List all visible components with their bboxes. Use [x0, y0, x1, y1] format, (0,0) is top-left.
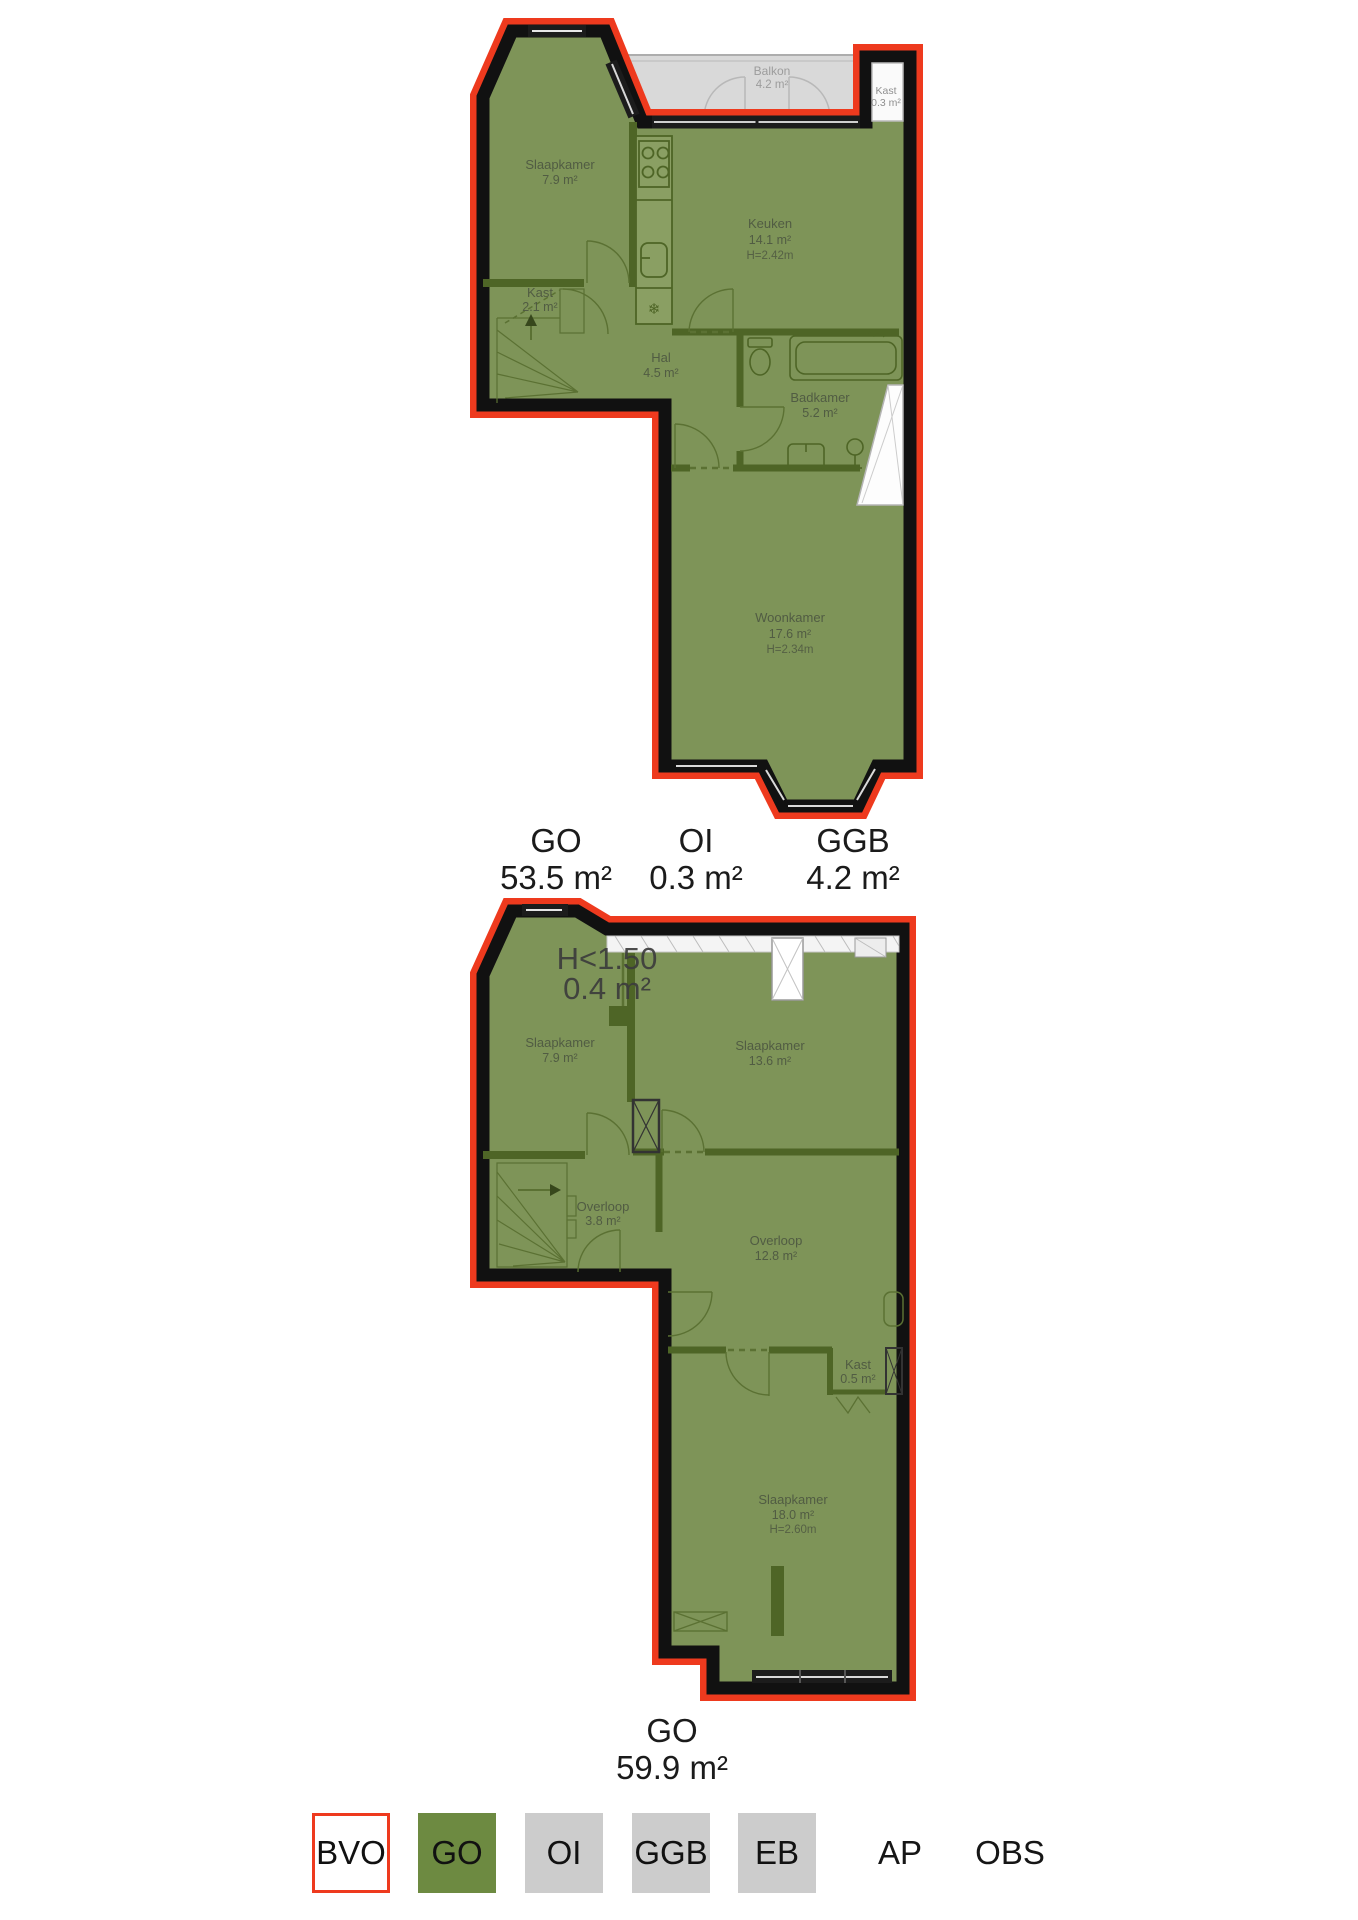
- floor1-total-go: GO 53.5 m²: [500, 822, 612, 896]
- legend-item-oi: OI: [525, 1813, 603, 1893]
- low-height-annotation: H<1.50 0.4 m²: [557, 944, 658, 1004]
- room-label-kast-oi: Kast: [875, 85, 896, 97]
- room-label-overloop-groot: Overloop: [750, 1233, 803, 1248]
- room-label-badkamer: Badkamer: [790, 390, 850, 405]
- svg-text:13.6 m²: 13.6 m²: [749, 1054, 791, 1068]
- floor-plan-2: Slaapkamer 7.9 m² Slaapkamer 13.6 m² Ove…: [483, 904, 903, 1688]
- room-label-hal: Hal: [651, 350, 671, 365]
- floor1-total-ggb: GGB 4.2 m²: [806, 822, 900, 896]
- room-label-slaapkamer-3: Slaapkamer: [758, 1492, 828, 1507]
- room-label-slaapkamer-2: Slaapkamer: [735, 1038, 805, 1053]
- room-label-balkon: Balkon: [754, 64, 791, 78]
- room-label-kast-2: Kast: [845, 1357, 871, 1372]
- wall-stub: [771, 1566, 784, 1636]
- svg-text:H=2.42m: H=2.42m: [747, 250, 794, 262]
- legend-item-obs: OBS: [975, 1813, 1045, 1893]
- room-label-slaapkamer: Slaapkamer: [525, 157, 595, 172]
- svg-text:0.5 m²: 0.5 m²: [840, 1372, 875, 1386]
- room-label-overloop-klein: Overloop: [577, 1199, 630, 1214]
- floor1-walls: [483, 31, 910, 806]
- floor2-total-go: GO 59.9 m²: [616, 1712, 728, 1786]
- kitchen-counter: [636, 136, 672, 324]
- svg-text:0.3 m²: 0.3 m²: [871, 97, 901, 109]
- legend-item-go: GO: [418, 1813, 496, 1893]
- svg-text:H=2.34m: H=2.34m: [767, 644, 814, 656]
- svg-text:4.2 m²: 4.2 m²: [756, 79, 789, 91]
- legend-item-eb: EB: [738, 1813, 816, 1893]
- svg-text:7.9 m²: 7.9 m²: [542, 1051, 577, 1065]
- svg-text:18.0 m²: 18.0 m²: [772, 1508, 814, 1522]
- room-label-slaapkamer-1: Slaapkamer: [525, 1035, 595, 1050]
- floor-plan-1: ❄ Slaapkamer 7.9 m²: [483, 25, 910, 806]
- svg-text:7.9 m²: 7.9 m²: [542, 173, 577, 187]
- legend-item-bvo: BVO: [312, 1813, 390, 1893]
- svg-text:H=2.60m: H=2.60m: [770, 1524, 817, 1536]
- legend-item-ap: AP: [878, 1813, 922, 1893]
- svg-text:17.6 m²: 17.6 m²: [769, 627, 811, 641]
- room-label-woonkamer: Woonkamer: [755, 610, 826, 625]
- freezer-icon: ❄: [648, 301, 661, 318]
- room-label-kast: Kast: [527, 285, 553, 300]
- svg-text:2.1 m²: 2.1 m²: [522, 300, 557, 314]
- legend-item-ggb: GGB: [632, 1813, 710, 1893]
- svg-text:5.2 m²: 5.2 m²: [802, 406, 837, 420]
- floor2-walls: [483, 911, 903, 1688]
- svg-text:14.1 m²: 14.1 m²: [749, 233, 791, 247]
- svg-text:4.5 m²: 4.5 m²: [643, 366, 678, 380]
- floor1-total-oi: OI 0.3 m²: [649, 822, 743, 896]
- room-label-keuken: Keuken: [748, 216, 792, 231]
- svg-text:12.8 m²: 12.8 m²: [755, 1249, 797, 1263]
- floorplan-page: ❄ Slaapkamer 7.9 m²: [0, 0, 1358, 1920]
- floorplan-drawing: ❄ Slaapkamer 7.9 m²: [0, 0, 1358, 1920]
- svg-text:3.8 m²: 3.8 m²: [585, 1214, 620, 1228]
